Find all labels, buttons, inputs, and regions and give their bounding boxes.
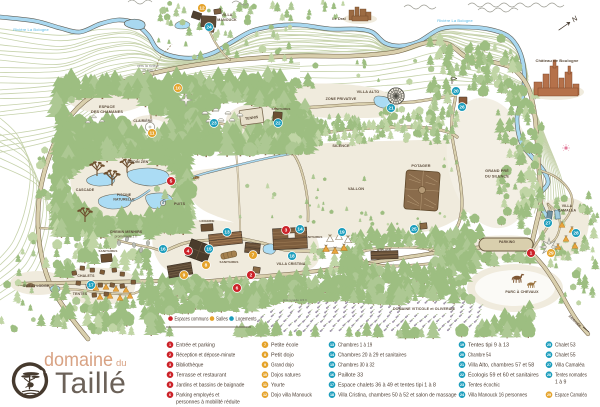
- svg-text:28: 28: [573, 231, 579, 237]
- svg-text:6: 6: [236, 286, 239, 292]
- svg-text:Taillé: Taillé: [55, 367, 126, 400]
- svg-text:8: 8: [205, 263, 208, 269]
- svg-text:Tentes tipi 9 à 13: Tentes tipi 9 à 13: [468, 343, 509, 349]
- svg-text:19: 19: [460, 343, 464, 347]
- svg-text:1: 1: [530, 251, 533, 257]
- svg-text:5: 5: [170, 179, 173, 185]
- svg-text:14: 14: [297, 227, 303, 233]
- svg-text:PARKING: PARKING: [499, 240, 515, 244]
- svg-text:Grand dojo: Grand dojo: [271, 363, 294, 369]
- svg-text:Réception et dépose-minute: Réception et dépose-minute: [176, 353, 235, 359]
- svg-text:MANOUCK: MANOUCK: [217, 18, 237, 22]
- svg-text:3: 3: [285, 228, 288, 234]
- svg-text:11: 11: [263, 383, 267, 387]
- svg-text:promenade 1 h: promenade 1 h: [115, 235, 138, 239]
- svg-text:NATURELLE: NATURELLE: [113, 198, 135, 202]
- svg-text:VILLA CRISTINA: VILLA CRISTINA: [277, 262, 306, 266]
- svg-text:26: 26: [547, 353, 551, 357]
- svg-text:Petit dojo: Petit dojo: [271, 353, 294, 359]
- svg-text:Tentes nomades: Tentes nomades: [555, 373, 587, 379]
- svg-text:DOMAINE VITICOLE et OLIVERAIE: DOMAINE VITICOLE et OLIVERAIE: [393, 307, 456, 311]
- svg-text:SANITAIRES: SANITAIRES: [304, 235, 323, 239]
- svg-text:20: 20: [453, 89, 459, 95]
- svg-text:Logements: Logements: [236, 317, 257, 323]
- svg-text:Petite école: Petite école: [271, 343, 298, 349]
- svg-text:VILLA ALTO: VILLA ALTO: [357, 90, 380, 94]
- svg-text:Espace chalets 36 à 49 et tent: Espace chalets 36 à 49 et tentes tipi 1 …: [338, 383, 436, 389]
- svg-text:Jardins et bassins de baignade: Jardins et bassins de baignade: [176, 383, 244, 389]
- svg-text:13: 13: [330, 343, 334, 347]
- svg-text:PUITS: PUITS: [174, 202, 186, 206]
- svg-text:25: 25: [547, 343, 551, 347]
- svg-text:Rivière La Bologne: Rivière La Bologne: [13, 27, 49, 32]
- svg-text:2: 2: [250, 273, 253, 279]
- svg-text:12: 12: [263, 393, 267, 397]
- svg-text:Chambre 54: Chambre 54: [468, 353, 491, 359]
- svg-text:Salles: Salles: [216, 317, 228, 323]
- svg-text:8: 8: [264, 353, 266, 357]
- svg-text:Villa Cristina, chambres 50 à: Villa Cristina, chambres 50 à 52 et salo…: [338, 393, 457, 399]
- svg-text:CASCADE: CASCADE: [76, 188, 95, 192]
- svg-text:7: 7: [264, 343, 266, 347]
- svg-text:2: 2: [169, 353, 171, 357]
- svg-text:SANITAIRES: SANITAIRES: [220, 260, 239, 264]
- svg-text:Chambres 30 à 32: Chambres 30 à 32: [338, 363, 375, 369]
- svg-text:20: 20: [460, 353, 464, 357]
- svg-text:6: 6: [169, 393, 171, 397]
- svg-text:GRAND PRÉ: GRAND PRÉ: [485, 168, 509, 173]
- svg-text:21: 21: [460, 363, 464, 367]
- svg-text:PARC À CHEVAUX: PARC À CHEVAUX: [505, 289, 539, 294]
- svg-text:17: 17: [330, 383, 334, 387]
- svg-text:26: 26: [459, 105, 465, 111]
- svg-text:23: 23: [460, 383, 464, 387]
- svg-text:CHALETS: CHALETS: [77, 274, 95, 278]
- svg-text:Le Dral: Le Dral: [332, 17, 346, 21]
- svg-text:Écologis 59 et 60 et sanitaire: Écologis 59 et 60 et sanitaires: [468, 372, 539, 379]
- svg-text:16: 16: [160, 247, 166, 253]
- svg-text:VALLON: VALLON: [348, 186, 364, 191]
- svg-text:SILENCE: SILENCE: [332, 144, 350, 148]
- svg-text:TENTES: TENTES: [73, 292, 88, 296]
- svg-text:Tentes écochic: Tentes écochic: [468, 383, 500, 389]
- svg-text:Paillote 33: Paillote 33: [338, 373, 363, 379]
- svg-text:Espace Camaléa: Espace Camaléa: [555, 393, 588, 399]
- svg-text:PISCINE: PISCINE: [117, 193, 132, 197]
- svg-text:5: 5: [169, 383, 171, 387]
- svg-text:16: 16: [330, 373, 334, 377]
- svg-text:29: 29: [547, 393, 551, 397]
- svg-text:LINGERIE: LINGERIE: [200, 219, 215, 223]
- svg-text:personnes à mobilité réduite: personnes à mobilité réduite: [176, 399, 240, 405]
- svg-text:24: 24: [206, 25, 212, 31]
- svg-text:ZONE PRIVATIVE: ZONE PRIVATIVE: [326, 97, 357, 101]
- svg-text:promenade 3/4 h: promenade 3/4 h: [283, 298, 307, 302]
- svg-text:29: 29: [548, 251, 554, 257]
- svg-text:Chalet 55: Chalet 55: [555, 353, 576, 359]
- svg-text:Dojos natures: Dojos natures: [271, 373, 301, 379]
- svg-text:7: 7: [252, 253, 255, 259]
- svg-text:DES CHAMANES: DES CHAMANES: [91, 110, 123, 114]
- svg-text:9: 9: [183, 273, 186, 279]
- svg-text:Chambres 20 à 29 et sanitaires: Chambres 20 à 29 et sanitaires: [338, 353, 407, 359]
- svg-text:Entrée et parking: Entrée et parking: [176, 343, 215, 349]
- svg-text:9: 9: [264, 363, 266, 367]
- svg-text:22: 22: [275, 121, 281, 127]
- svg-text:SANITAIRES: SANITAIRES: [99, 249, 118, 253]
- svg-text:18: 18: [289, 254, 295, 260]
- svg-text:12: 12: [199, 6, 205, 12]
- svg-text:Chalet 53: Chalet 53: [555, 343, 576, 349]
- svg-text:ESPACE: ESPACE: [99, 105, 115, 109]
- svg-text:vers la rivière: vers la rivière: [137, 64, 159, 68]
- svg-text:1: 1: [169, 343, 171, 347]
- svg-text:23: 23: [211, 121, 217, 127]
- svg-text:CLAIRIÈRE: CLAIRIÈRE: [133, 118, 153, 123]
- svg-text:28: 28: [547, 373, 551, 377]
- svg-text:Rivière La Bologne: Rivière La Bologne: [437, 18, 473, 23]
- svg-text:ATELIER: ATELIER: [377, 248, 392, 252]
- svg-text:Villa Manouck 16 personnes: Villa Manouck 16 personnes: [468, 393, 527, 399]
- svg-text:10: 10: [175, 86, 181, 92]
- svg-text:27: 27: [547, 363, 551, 367]
- svg-text:DU SILENCE: DU SILENCE: [485, 175, 509, 179]
- svg-text:17: 17: [88, 283, 94, 289]
- svg-text:25 min.: 25 min.: [142, 69, 154, 73]
- svg-text:19: 19: [339, 230, 345, 236]
- svg-text:Château de Boulogne: Château de Boulogne: [535, 58, 579, 63]
- svg-text:CAMALÉA: CAMALÉA: [558, 208, 577, 213]
- svg-text:Dojo villa Manouck: Dojo villa Manouck: [271, 393, 312, 399]
- svg-text:21: 21: [388, 106, 394, 112]
- svg-text:10: 10: [263, 373, 267, 377]
- svg-text:SWEAT LODGE: SWEAT LODGE: [23, 284, 50, 288]
- svg-text:Yourte: Yourte: [271, 383, 285, 389]
- svg-text:JARDIN ZEN: JARDIN ZEN: [126, 160, 149, 164]
- svg-text:Bibliothèque: Bibliothèque: [176, 363, 203, 369]
- svg-text:1 à 9: 1 à 9: [555, 379, 566, 385]
- svg-text:VILLA: VILLA: [222, 13, 233, 17]
- svg-text:CHEMIN MENHIRS: CHEMIN MENHIRS: [110, 230, 143, 234]
- svg-text:Parking employés et: Parking employés et: [176, 393, 220, 399]
- svg-text:22: 22: [460, 373, 464, 377]
- svg-text:POTAGER: POTAGER: [411, 164, 430, 168]
- svg-text:Chambres 1 à 19: Chambres 1 à 19: [338, 343, 372, 349]
- svg-text:15: 15: [206, 247, 212, 253]
- svg-text:3: 3: [169, 363, 171, 367]
- svg-text:Villa Camaléa: Villa Camaléa: [555, 363, 585, 369]
- svg-text:Villa Alto, chambres 57 et 58: Villa Alto, chambres 57 et 58: [468, 363, 534, 369]
- svg-text:13: 13: [224, 230, 230, 236]
- svg-text:27: 27: [545, 221, 551, 227]
- svg-text:11: 11: [149, 131, 154, 137]
- svg-text:Espaces communs: Espaces communs: [175, 317, 209, 323]
- svg-text:25: 25: [411, 227, 417, 233]
- svg-text:15: 15: [330, 363, 334, 367]
- svg-text:Terrasse et restaurant: Terrasse et restaurant: [176, 373, 227, 379]
- svg-text:4: 4: [187, 249, 190, 255]
- svg-text:VILLA: VILLA: [562, 204, 573, 208]
- svg-text:18: 18: [330, 393, 334, 397]
- svg-text:SANITAIRES: SANITAIRES: [272, 107, 291, 111]
